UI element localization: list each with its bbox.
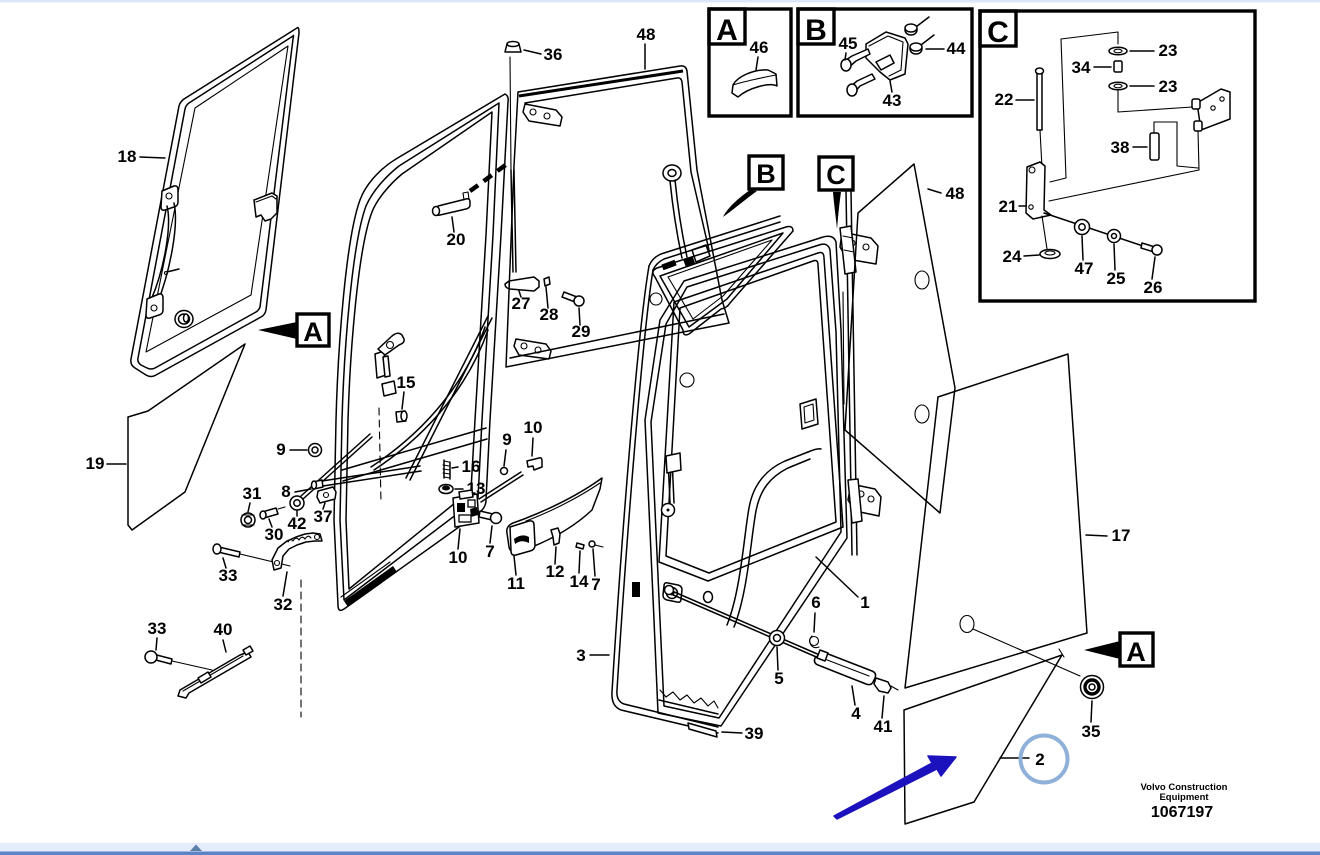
svg-text:4: 4	[851, 704, 861, 723]
svg-text:18: 18	[118, 147, 137, 166]
svg-text:A: A	[716, 14, 738, 47]
svg-text:11: 11	[507, 574, 525, 593]
svg-text:9: 9	[502, 430, 511, 449]
svg-text:38: 38	[1111, 138, 1130, 157]
svg-text:44: 44	[947, 39, 966, 58]
svg-text:B: B	[756, 159, 776, 189]
svg-text:31: 31	[243, 484, 262, 503]
svg-text:3: 3	[576, 646, 585, 665]
svg-text:10: 10	[449, 548, 468, 567]
svg-text:48: 48	[946, 184, 965, 203]
svg-text:45: 45	[839, 34, 858, 53]
svg-text:1: 1	[860, 593, 869, 612]
svg-text:26: 26	[1144, 278, 1163, 297]
svg-text:40: 40	[214, 620, 233, 639]
svg-text:7: 7	[485, 542, 494, 561]
svg-text:28: 28	[540, 305, 559, 324]
svg-text:29: 29	[572, 322, 591, 341]
svg-text:47: 47	[1075, 259, 1094, 278]
svg-text:37: 37	[314, 507, 333, 526]
svg-text:43: 43	[883, 91, 902, 110]
svg-text:5: 5	[774, 669, 783, 688]
svg-text:46: 46	[750, 38, 769, 57]
svg-text:8: 8	[281, 482, 290, 501]
svg-text:42: 42	[288, 514, 307, 533]
svg-text:20: 20	[447, 230, 466, 249]
svg-text:39: 39	[745, 724, 764, 743]
svg-text:14: 14	[570, 572, 589, 591]
svg-text:21: 21	[999, 197, 1018, 216]
svg-text:12: 12	[546, 562, 565, 581]
svg-text:36: 36	[544, 45, 563, 64]
svg-text:C: C	[826, 160, 846, 190]
svg-text:7: 7	[591, 575, 600, 594]
svg-text:9: 9	[276, 440, 285, 459]
svg-text:23: 23	[1159, 41, 1178, 60]
svg-text:33: 33	[219, 566, 238, 585]
svg-text:Equipment: Equipment	[1159, 792, 1209, 803]
svg-text:15: 15	[397, 373, 416, 392]
svg-text:10: 10	[524, 418, 543, 437]
svg-text:2: 2	[1035, 750, 1044, 769]
svg-text:24: 24	[1003, 247, 1022, 266]
svg-text:1067197: 1067197	[1151, 804, 1213, 821]
svg-text:33: 33	[148, 619, 167, 638]
svg-text:19: 19	[86, 454, 105, 473]
svg-text:48: 48	[637, 25, 656, 44]
svg-text:32: 32	[274, 595, 293, 614]
svg-text:16: 16	[462, 457, 481, 476]
svg-text:25: 25	[1107, 269, 1126, 288]
svg-text:23: 23	[1159, 77, 1178, 96]
svg-text:A: A	[303, 317, 323, 347]
svg-text:C: C	[987, 16, 1009, 49]
svg-text:6: 6	[811, 593, 820, 612]
svg-text:34: 34	[1072, 58, 1091, 77]
svg-text:17: 17	[1112, 526, 1131, 545]
svg-text:A: A	[1126, 637, 1146, 667]
svg-text:35: 35	[1082, 722, 1101, 741]
svg-text:30: 30	[265, 525, 284, 544]
svg-text:41: 41	[874, 717, 893, 736]
svg-text:22: 22	[995, 90, 1014, 109]
svg-text:B: B	[805, 14, 827, 47]
